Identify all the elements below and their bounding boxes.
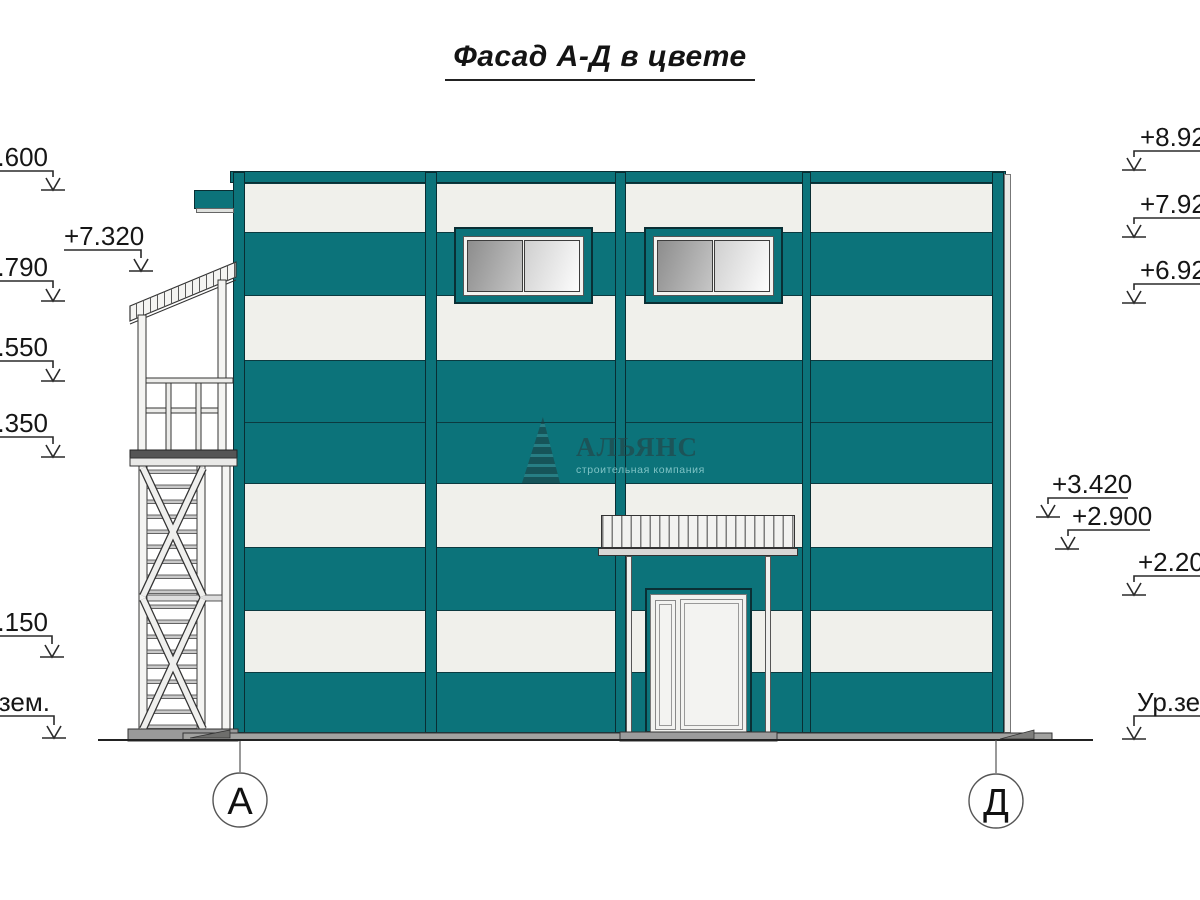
door-threshold [620, 732, 777, 741]
stair-base [128, 729, 238, 741]
elevation-marker [0, 716, 66, 738]
stair-post [222, 466, 230, 731]
elevation-label: Ур.зем. [0, 687, 50, 718]
elevation-label: +6.790 [0, 252, 48, 283]
stair-landing [147, 595, 222, 601]
stair-roof [130, 262, 236, 321]
window-frame [463, 236, 584, 296]
watermark-company-subtitle: строительная компания [576, 464, 705, 476]
elevation-marker [1122, 576, 1200, 595]
canopy-post [626, 556, 632, 733]
window-pane [524, 240, 580, 292]
door-sidelight [655, 600, 676, 730]
elevation-marker [64, 250, 153, 271]
elevation-marker [0, 281, 65, 301]
facade-drawing-page: Фасад А-Д в цвете [0, 0, 1200, 900]
axis-label-a: А [213, 781, 267, 824]
gutter-beam [194, 190, 234, 209]
pilaster [992, 172, 1004, 733]
axis-bubbles [213, 740, 1023, 828]
canopy-post [765, 556, 771, 733]
window-left [454, 227, 593, 304]
elevation-marker [1122, 151, 1200, 170]
elevation-markers-right [1036, 151, 1200, 739]
balcony-floor [130, 450, 237, 458]
elevation-marker [0, 171, 65, 190]
axis-label-d: Д [969, 782, 1023, 825]
stair-post [139, 466, 147, 731]
left-ramp-wedge [190, 730, 230, 738]
elevation-marker [0, 636, 64, 657]
window-frame [653, 236, 774, 296]
elevation-label: +3.420 [1052, 469, 1130, 500]
stair-bracing [143, 468, 203, 729]
drawing-title: Фасад А-Д в цвете [445, 40, 754, 81]
elevation-label: +1.150 [0, 607, 48, 638]
elevation-label: +7.320 [64, 221, 142, 252]
window-pane [714, 240, 770, 292]
elevation-label: +5.550 [0, 332, 48, 363]
elevation-marker [0, 437, 65, 457]
elevation-marker [0, 361, 65, 381]
balcony-post [218, 280, 226, 455]
gutter-beam-edge [196, 208, 234, 213]
window-pane [467, 240, 523, 292]
elevation-label: +8.600 [0, 142, 48, 173]
pilaster [425, 172, 437, 733]
building-base [183, 733, 1052, 740]
window-right [644, 227, 783, 304]
canopy-fascia [598, 548, 798, 556]
stair-tower [128, 262, 238, 741]
window-pane [657, 240, 713, 292]
pilaster [802, 172, 811, 733]
elevation-label: +8.920 [1140, 122, 1200, 153]
elevation-marker [1122, 716, 1200, 739]
elevation-label: +6.920 [1140, 255, 1200, 286]
elevation-marker [1122, 218, 1200, 237]
drawing-title-wrap: Фасад А-Д в цвете [0, 40, 1200, 81]
stair-treads [147, 470, 197, 729]
pilaster [233, 172, 245, 733]
elevation-marker [1122, 284, 1200, 303]
watermark-company-name: АЛЬЯНС [576, 432, 698, 463]
stair-post [197, 466, 205, 731]
building-edge-strip [1004, 174, 1011, 733]
elevation-label: Ур.зем. [1137, 687, 1200, 718]
door-leaf [680, 599, 743, 730]
entrance-canopy [601, 515, 795, 548]
elevation-label: +2.200 [1138, 547, 1200, 578]
elevation-label: +2.900 [1072, 501, 1150, 532]
elevation-label: +4.350 [0, 408, 48, 439]
elevation-label: +7.920 [1140, 189, 1200, 220]
balcony-post [138, 315, 146, 455]
elevation-marker [1055, 530, 1150, 549]
